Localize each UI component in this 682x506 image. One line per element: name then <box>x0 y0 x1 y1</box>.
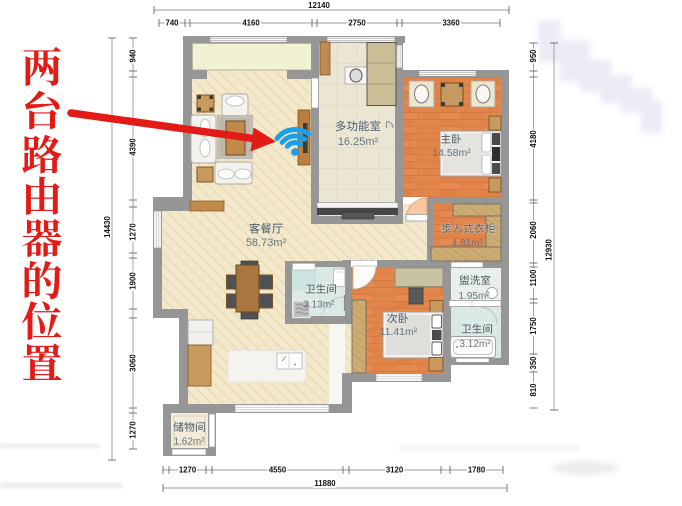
svg-text:2750: 2750 <box>348 19 366 28</box>
svg-text:1.95m²: 1.95m² <box>458 291 490 302</box>
svg-text:3360: 3360 <box>442 19 460 28</box>
svg-text:740: 740 <box>165 19 179 28</box>
svg-text:1270: 1270 <box>179 466 197 475</box>
svg-text:940: 940 <box>129 49 138 63</box>
svg-text:1100: 1100 <box>529 269 538 287</box>
svg-text:950: 950 <box>529 49 538 63</box>
svg-text:4550: 4550 <box>269 466 287 475</box>
svg-text:1270: 1270 <box>129 223 138 241</box>
svg-text:2060: 2060 <box>529 221 538 239</box>
svg-text:58.73m²: 58.73m² <box>246 237 287 249</box>
svg-text:3.12m²: 3.12m² <box>459 339 491 350</box>
svg-text:11.41m²: 11.41m² <box>380 326 418 338</box>
svg-text:810: 810 <box>529 383 538 397</box>
svg-text:1.62m²: 1.62m² <box>173 437 205 448</box>
svg-text:16.25m²: 16.25m² <box>338 136 379 148</box>
svg-text:4160: 4160 <box>242 19 260 28</box>
svg-text:3060: 3060 <box>129 354 138 372</box>
svg-text:14430: 14430 <box>103 215 112 237</box>
svg-text:14.58m²: 14.58m² <box>432 147 471 159</box>
svg-text:4.81m²: 4.81m² <box>452 238 484 249</box>
svg-text:350: 350 <box>529 356 538 370</box>
svg-text:1750: 1750 <box>529 317 538 335</box>
svg-text:4390: 4390 <box>129 138 138 156</box>
svg-text:4180: 4180 <box>529 130 538 148</box>
svg-text:12930: 12930 <box>545 238 554 260</box>
svg-text:12140: 12140 <box>308 1 330 10</box>
svg-text:3120: 3120 <box>386 466 404 475</box>
svg-text:1900: 1900 <box>129 272 138 290</box>
svg-text:1270: 1270 <box>129 421 138 439</box>
svg-text:11880: 11880 <box>314 479 336 488</box>
svg-text:1780: 1780 <box>468 466 486 475</box>
svg-text:3.13m²: 3.13m² <box>303 300 335 311</box>
